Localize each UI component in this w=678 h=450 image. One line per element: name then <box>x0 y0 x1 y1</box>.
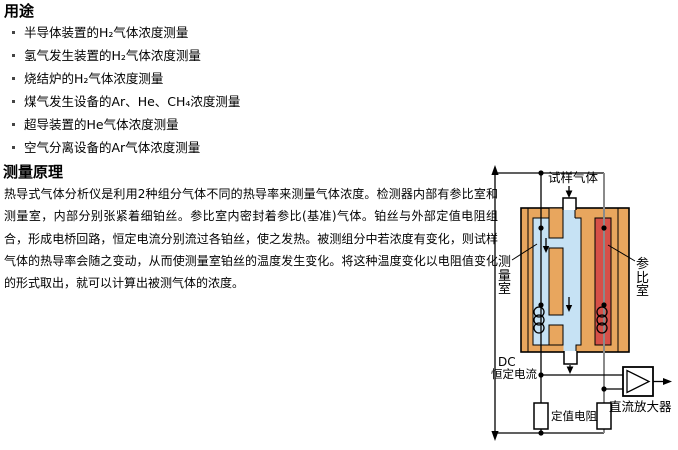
detector-block <box>521 208 629 352</box>
app-list-item: 烧结炉的H₂气体浓度测量 <box>3 72 503 85</box>
dc-amplifier-label: 直流放大器 <box>609 400 672 414</box>
app-list-item-text: 氢气发生装置的H₂气体浓度测量 <box>24 48 201 63</box>
text-column: 用途 半导体装置的H₂气体浓度测量 氢气发生装置的H₂气体浓度测量 烧结炉的H₂… <box>0 0 503 294</box>
gas-inlet-arrow <box>566 186 573 198</box>
app-list-item-text: 空气分离设备的Ar气体浓度测量 <box>24 140 200 155</box>
bullet-icon <box>12 31 15 34</box>
bullet-icon <box>12 54 15 57</box>
reference-chamber-label: 参比室 <box>636 258 650 299</box>
measuring-chamber-label: 测量室 <box>498 256 512 297</box>
baffle-bottom <box>549 325 563 345</box>
app-list-item: 煤气发生设备的Ar、He、CH₄浓度测量 <box>3 95 503 108</box>
bullet-icon <box>12 146 15 149</box>
app-list-item-text: 半导体装置的H₂气体浓度测量 <box>24 25 188 40</box>
app-list-item: 半导体装置的H₂气体浓度测量 <box>3 26 503 39</box>
bullet-icon <box>12 100 15 103</box>
app-list-item: 空气分离设备的Ar气体浓度测量 <box>3 141 503 154</box>
sample-gas-label: 试样气体 <box>548 171 598 185</box>
dc-current-loop-arrow <box>491 165 498 441</box>
baffle-center <box>549 248 563 315</box>
gas-outlet-port <box>564 351 577 364</box>
document-page: 用途 半导体装置的H₂气体浓度测量 氢气发生装置的H₂气体浓度测量 烧结炉的H₂… <box>0 0 678 450</box>
constant-current-label: 恒定电流 <box>491 367 537 381</box>
gas-inlet-port <box>563 198 576 210</box>
app-list-item-text: 超导装置的He气体浓度测量 <box>24 117 179 132</box>
baffle-top <box>549 208 563 238</box>
principle-body: 热导式气体分析仪是利用2种组分气体不同的热导率来测量气体浓度。检测器内部有参比室… <box>4 183 498 294</box>
bullet-icon <box>12 123 15 126</box>
app-list-item-text: 煤气发生设备的Ar、He、CH₄浓度测量 <box>24 94 240 109</box>
app-list-item: 超导装置的He气体浓度测量 <box>3 118 503 131</box>
gas-outlet-arrow <box>567 365 574 374</box>
dc-amplifier-symbol <box>623 367 672 396</box>
bullet-icon <box>12 77 15 80</box>
applications-list: 半导体装置的H₂气体浓度测量 氢气发生装置的H₂气体浓度测量 烧结炉的H₂气体浓… <box>3 26 503 154</box>
app-list-item-text: 烧结炉的H₂气体浓度测量 <box>24 71 163 86</box>
fixed-resistor-measure <box>534 403 548 429</box>
applications-title: 用途 <box>4 3 503 20</box>
fixed-resistor-label: 定值电阻 <box>551 409 597 423</box>
app-list-item: 氢气发生装置的H₂气体浓度测量 <box>3 49 503 62</box>
principle-title: 测量原理 <box>3 164 503 181</box>
detector-schematic: 试样气体 测量室 参比室 DC 恒定电流 定值电阻 直流放大器 <box>488 160 678 450</box>
output-arrow <box>653 378 672 385</box>
